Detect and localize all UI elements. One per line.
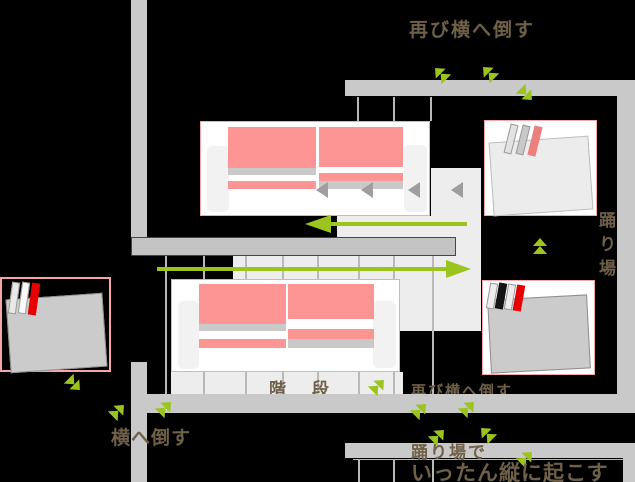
sofa-armrest [404,145,427,212]
sofa-seat-stripe [319,173,403,181]
wall-left-upper [131,0,147,256]
wall-left-lower [131,362,147,482]
wall-bottom-second [345,443,635,458]
sofa-seat-stripe [288,329,374,339]
sofa-cushion [319,127,403,167]
move-chevron-icon [533,236,547,254]
wall-right-bottom-stub [623,458,635,482]
arrowhead [446,260,471,278]
sofa-topview-lower-flight [171,279,400,372]
direction-triangle-icon [316,182,328,198]
sofa-armrest [178,301,199,369]
direction-triangle-icon [451,182,463,198]
sofa-seat-stripe [288,339,374,348]
sofa-seat-stripe [199,324,286,331]
move-chevron-icon [64,374,87,397]
direction-triangle-icon [361,182,373,198]
bottom-left-instruction-label: 横へ倒す [111,423,191,450]
stair-tread-line [357,97,359,121]
sofa-cushion [199,284,286,324]
path-arrow-right-icon [157,260,471,278]
sofa-seat-stripe [228,181,316,189]
stair-tread-line [358,459,360,482]
sofa-cushion [288,284,374,319]
arrowhead [305,215,331,233]
top-instruction-label: 再び横へ倒す [409,15,535,42]
move-chevron-icon [108,399,131,422]
stair-tread-line [430,97,432,121]
wall-middle-divider [131,237,456,256]
sofa-on-side-upper-landing [484,120,597,216]
staircase-diagram: 階段 再び横へ倒す [0,0,635,482]
wall-right [617,80,635,413]
path-arrow-left-icon [305,215,467,233]
sofa-seat-stripe [199,339,286,348]
sofa-seat-stripe [228,168,316,175]
landing-side-label: 踊り場 [593,211,618,283]
stair-tread-line [393,97,395,121]
sofa-armrest [373,301,396,368]
landing-bottom-label-line2: いったん縦に起こす [411,457,609,482]
sofa-cushion [228,127,316,168]
arrow-shaft [157,267,446,271]
stair-tread-line [393,459,395,482]
sofa-topview-upper-flight [200,121,430,216]
sofa-upright-landing [482,280,595,375]
direction-triangle-icon [408,182,420,198]
wall-bottom [131,394,635,413]
sofa-on-side-entry [0,277,111,372]
sofa-armrest [207,146,229,212]
arrow-shaft [331,222,467,226]
